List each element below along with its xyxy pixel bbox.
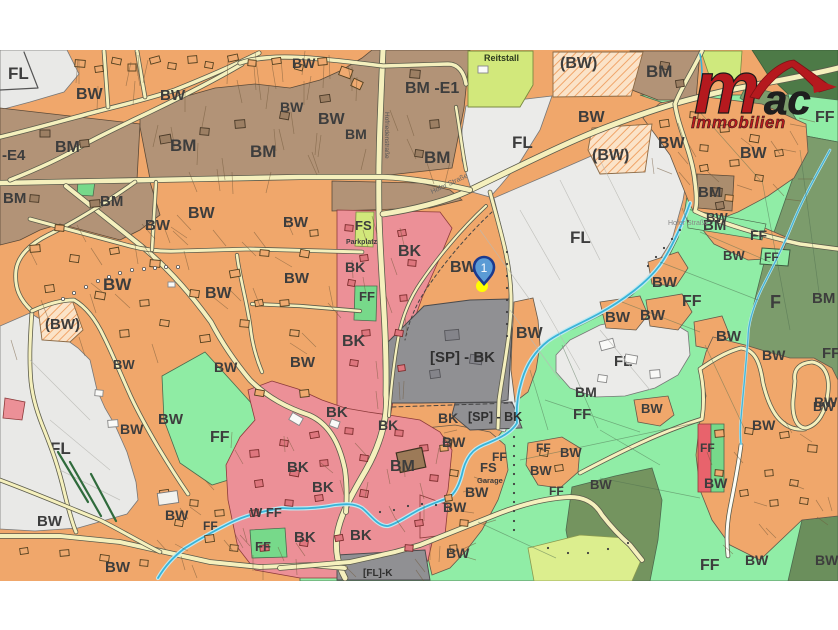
svg-text:BW: BW <box>640 307 666 324</box>
svg-text:BW: BW <box>443 499 467 515</box>
svg-text:BW: BW <box>752 417 776 433</box>
svg-text:FF: FF <box>700 557 720 574</box>
svg-text:BK: BK <box>287 459 309 476</box>
svg-text:BW: BW <box>188 205 216 222</box>
svg-text:BM: BM <box>575 384 597 400</box>
svg-text:BM -E1: BM -E1 <box>405 80 459 97</box>
svg-text:BW: BW <box>76 86 104 103</box>
svg-text:BK: BK <box>378 417 398 433</box>
svg-text:BW: BW <box>103 275 132 294</box>
svg-text:BM: BM <box>345 126 367 142</box>
svg-text:BW: BW <box>652 274 678 291</box>
svg-text:BW: BW <box>815 552 838 568</box>
svg-text:BW: BW <box>145 217 171 234</box>
svg-text:BW: BW <box>716 328 742 345</box>
svg-text:FF: FF <box>203 519 218 533</box>
svg-text:BK: BK <box>294 529 316 546</box>
svg-text:Parkplatz: Parkplatz <box>346 239 378 246</box>
svg-text:BK: BK <box>350 527 372 544</box>
svg-text:BM: BM <box>3 190 26 207</box>
svg-text:Garage: Garage <box>477 476 503 485</box>
svg-text:BW: BW <box>516 325 544 342</box>
svg-text:FL: FL <box>570 228 591 247</box>
svg-text:BM: BM <box>646 62 672 81</box>
svg-text:BK: BK <box>312 479 334 496</box>
svg-text:FF: FF <box>210 429 230 446</box>
svg-text:BW: BW <box>158 411 184 428</box>
svg-text:BM: BM <box>390 458 415 475</box>
svg-text:FF: FF <box>682 293 702 310</box>
svg-text:BM: BM <box>698 184 721 201</box>
svg-text:FF: FF <box>359 289 375 304</box>
svg-text:BK: BK <box>342 333 366 350</box>
svg-text:BW: BW <box>280 99 304 115</box>
svg-text:FL: FL <box>512 133 533 152</box>
svg-text:BW: BW <box>658 135 686 152</box>
svg-text:BW: BW <box>113 357 135 372</box>
svg-text:BW: BW <box>446 545 470 561</box>
svg-text:BM: BM <box>812 290 835 307</box>
svg-text:Immobilien: Immobilien <box>691 113 786 132</box>
svg-text:BK: BK <box>326 404 348 421</box>
svg-text:BW: BW <box>723 248 745 263</box>
svg-text:[SP] - BK: [SP] - BK <box>468 410 522 424</box>
svg-text:BW: BW <box>165 507 189 523</box>
svg-text:Reitstall: Reitstall <box>484 53 519 63</box>
svg-text:FF: FF <box>822 345 838 362</box>
svg-text:FF: FF <box>750 227 768 243</box>
svg-text:FF: FF <box>815 109 835 126</box>
svg-text:BW: BW <box>120 421 144 437</box>
svg-text:BW: BW <box>560 445 582 460</box>
svg-text:FF: FF <box>492 450 507 464</box>
svg-text:1: 1 <box>481 261 488 275</box>
svg-text:BW: BW <box>740 145 768 162</box>
svg-text:BM: BM <box>100 193 123 210</box>
svg-text:(BW): (BW) <box>560 55 597 72</box>
svg-text:BW: BW <box>292 55 316 71</box>
svg-text:BK: BK <box>398 243 422 260</box>
svg-text:F: F <box>770 292 781 312</box>
svg-text:FF: FF <box>255 539 271 554</box>
svg-text:BW: BW <box>530 463 552 478</box>
svg-text:BM: BM <box>55 139 80 156</box>
svg-text:FF: FF <box>700 441 715 455</box>
svg-text:BW: BW <box>442 434 466 450</box>
svg-text:BW: BW <box>290 354 316 371</box>
svg-text:FF: FF <box>549 484 564 498</box>
svg-text:BW: BW <box>745 552 769 568</box>
svg-text:W FF: W FF <box>250 505 282 520</box>
svg-text:Hofer Straße: Hofer Straße <box>668 220 708 227</box>
svg-text:BM: BM <box>424 148 450 167</box>
svg-text:BW: BW <box>37 513 63 530</box>
svg-text:BW: BW <box>105 559 131 576</box>
svg-text:BW: BW <box>641 401 663 416</box>
svg-text:BM: BM <box>250 142 276 161</box>
svg-text:FF: FF <box>536 441 551 455</box>
svg-text:FL: FL <box>8 64 29 83</box>
svg-text:BW: BW <box>465 484 489 500</box>
svg-text:BW: BW <box>214 359 238 375</box>
svg-text:BW: BW <box>283 214 309 231</box>
svg-text:(BW): (BW) <box>592 147 629 164</box>
svg-text:(BW): (BW) <box>45 316 80 333</box>
svg-text:BW: BW <box>205 285 233 302</box>
svg-text:BM: BM <box>170 136 196 155</box>
svg-text:BW: BW <box>284 270 310 287</box>
svg-text:BW: BW <box>762 347 786 363</box>
svg-text:BW: BW <box>706 210 728 225</box>
svg-text:Hofriedenstraße: Hofriedenstraße <box>383 112 390 159</box>
svg-text:[SP] - BK: [SP] - BK <box>430 349 495 366</box>
svg-text:BW: BW <box>578 109 606 126</box>
svg-text:[FL]-K: [FL]-K <box>363 568 393 579</box>
svg-text:FF: FF <box>764 250 779 264</box>
svg-text:BW: BW <box>704 475 728 491</box>
svg-text:-E4: -E4 <box>2 147 26 164</box>
svg-text:BW: BW <box>318 111 346 128</box>
svg-text:BW: BW <box>590 477 612 492</box>
svg-text:FS: FS <box>355 218 372 233</box>
svg-text:BK: BK <box>438 410 458 426</box>
svg-text:FF: FF <box>573 406 591 423</box>
svg-text:BW: BW <box>605 309 631 326</box>
svg-text:BK: BK <box>345 259 365 275</box>
svg-text:BW: BW <box>814 394 838 410</box>
svg-text:BW: BW <box>160 87 186 104</box>
